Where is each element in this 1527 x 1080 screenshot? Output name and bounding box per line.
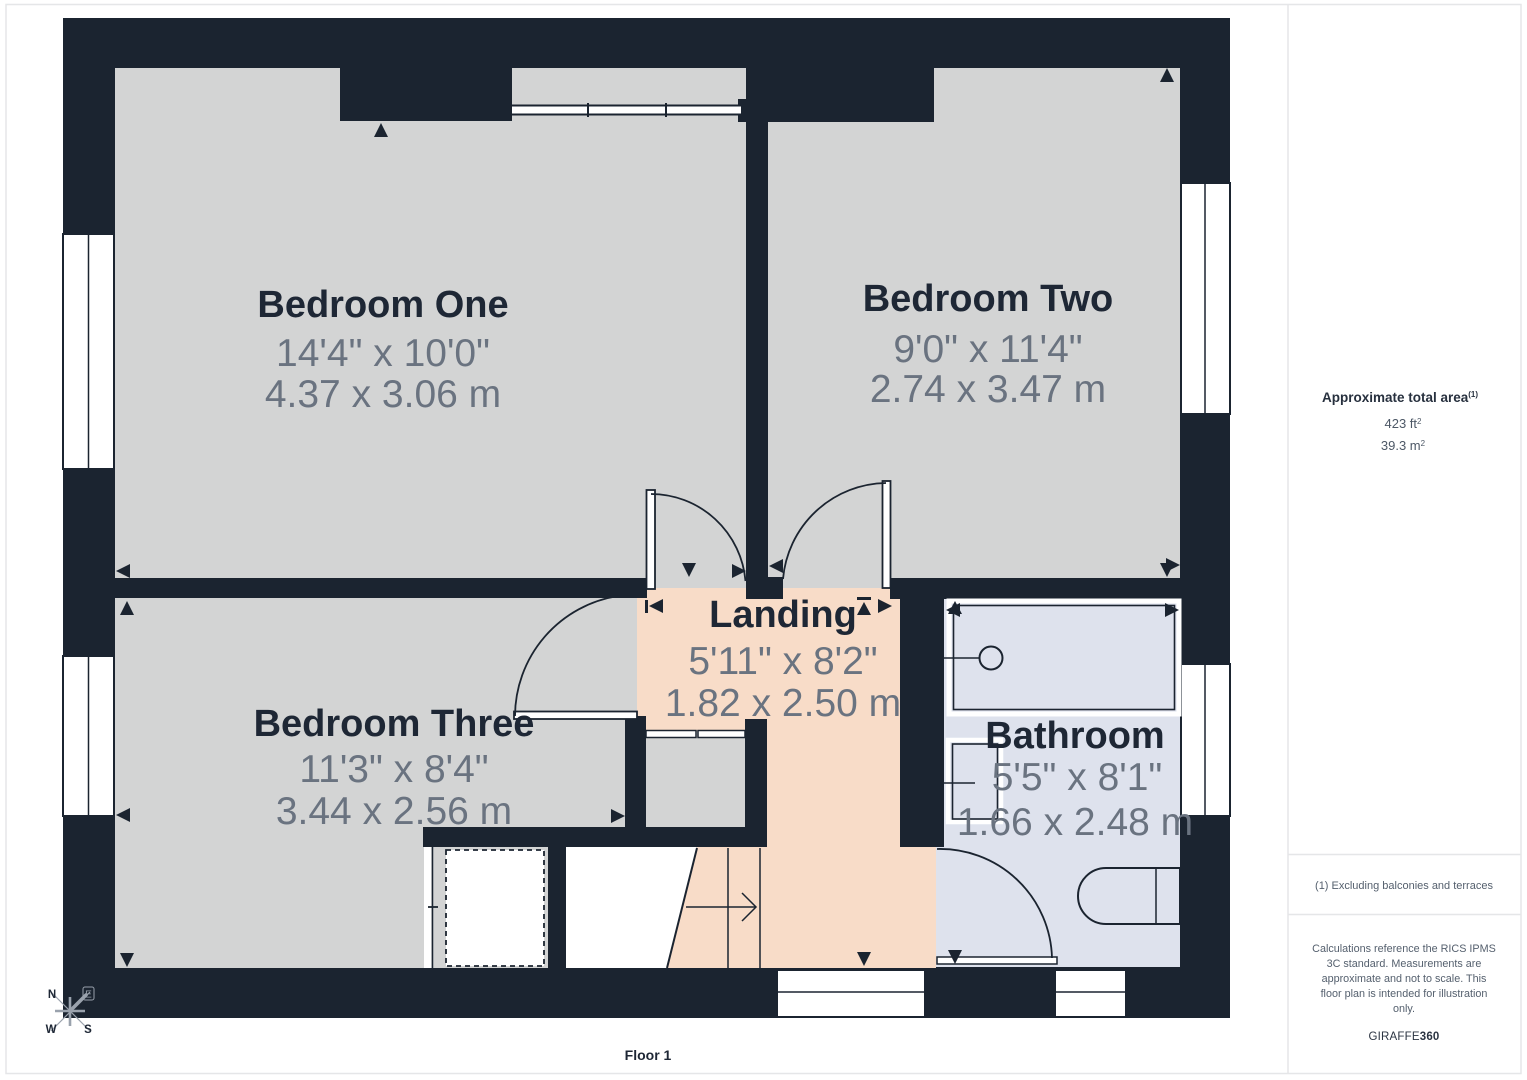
svg-text:1.82 x 2.50 m: 1.82 x 2.50 m	[665, 682, 901, 725]
svg-text:GIRAFFE360: GIRAFFE360	[1368, 1031, 1439, 1043]
svg-text:Bathroom: Bathroom	[985, 715, 1164, 757]
svg-text:Bedroom Three: Bedroom Three	[254, 703, 535, 745]
svg-text:423 ft2: 423 ft2	[1385, 416, 1423, 431]
svg-text:W: W	[46, 1024, 57, 1036]
svg-text:14'4" x 10'0": 14'4" x 10'0"	[276, 332, 490, 375]
svg-text:5'5" x 8'1": 5'5" x 8'1"	[992, 756, 1163, 799]
svg-text:Bedroom One: Bedroom One	[257, 284, 508, 326]
svg-text:9'0" x 11'4": 9'0" x 11'4"	[893, 328, 1082, 371]
svg-text:5'11" x 8'2": 5'11" x 8'2"	[688, 640, 877, 683]
svg-text:approximate and not to scale.: approximate and not to scale. This	[1322, 973, 1487, 985]
svg-text:2.74 x 3.47 m: 2.74 x 3.47 m	[870, 368, 1106, 411]
svg-text:only.: only.	[1393, 1003, 1415, 1015]
svg-text:N: N	[48, 989, 56, 1001]
svg-text:Floor 1: Floor 1	[625, 1047, 672, 1063]
svg-text:4.37 x 3.06 m: 4.37 x 3.06 m	[265, 373, 501, 416]
svg-text:Landing: Landing	[709, 594, 857, 636]
svg-text:Bedroom Two: Bedroom Two	[863, 278, 1114, 320]
svg-text:3C standard. Measurements are: 3C standard. Measurements are	[1327, 958, 1482, 970]
svg-text:floor plan is intended for ill: floor plan is intended for illustration	[1321, 988, 1488, 1000]
svg-text:Approximate total area(1): Approximate total area(1)	[1322, 390, 1478, 405]
svg-text:S: S	[84, 1024, 92, 1036]
svg-text:E: E	[85, 990, 92, 1001]
svg-text:11'3" x 8'4": 11'3" x 8'4"	[299, 748, 488, 791]
svg-text:Calculations reference the RIC: Calculations reference the RICS IPMS	[1312, 943, 1496, 955]
svg-text:1.66 x 2.48 m: 1.66 x 2.48 m	[957, 801, 1193, 844]
svg-text:3.44 x 2.56 m: 3.44 x 2.56 m	[276, 790, 512, 833]
svg-text:39.3 m2: 39.3 m2	[1381, 438, 1426, 453]
svg-text:(1) Excluding balconies and te: (1) Excluding balconies and terraces	[1315, 880, 1493, 892]
